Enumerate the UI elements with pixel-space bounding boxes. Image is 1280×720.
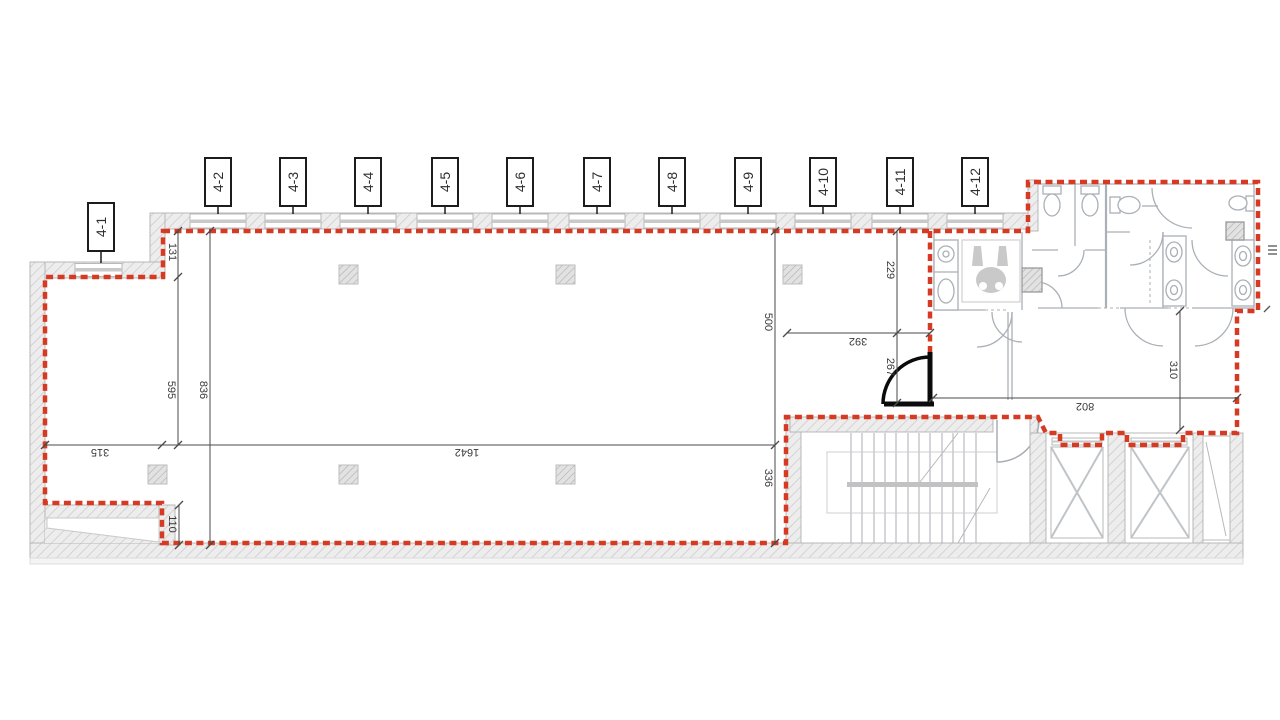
axis-label-4-7: 4-7 [584, 158, 610, 214]
door-arc [1058, 250, 1084, 276]
dimension-836: 836 [197, 381, 209, 399]
door-arc [1195, 308, 1233, 346]
urinal-fixture [1043, 186, 1061, 216]
stair-break-line [958, 488, 990, 543]
axis-label-4-9: 4-9 [735, 158, 761, 214]
svg-text:4-7: 4-7 [589, 172, 605, 192]
elevator-shaft-2 [1125, 433, 1193, 543]
door-arc [992, 312, 1022, 342]
svg-text:4-4: 4-4 [360, 172, 376, 192]
cleaning-trolley-icon [972, 246, 1008, 293]
bottom-wall-outer-band [30, 558, 1243, 564]
column [339, 265, 358, 284]
dimension-229: 229 [884, 261, 896, 279]
axis-labels: 4-1 4-2 4-3 4-4 4-5 4-6 [88, 158, 988, 263]
dimension-315: 315 [91, 446, 109, 458]
dimension-1642: 1642 [455, 446, 479, 458]
axis-label-4-3: 4-3 [280, 158, 306, 214]
svg-text:4-12: 4-12 [967, 168, 983, 196]
sink-counter [1232, 240, 1254, 306]
floor-plan-page: 131 595 836 315 1642 500 336 229 267 392… [0, 0, 1280, 720]
dimension-500: 500 [762, 313, 774, 331]
dimension-texts: 131 595 836 315 1642 500 336 229 267 392… [91, 243, 1179, 533]
svg-text:4-2: 4-2 [210, 172, 226, 192]
svg-text:4-1: 4-1 [93, 217, 109, 237]
stair-treads [851, 433, 976, 543]
axis-label-4-4: 4-4 [355, 158, 381, 214]
dimension-336: 336 [762, 469, 774, 487]
column [339, 465, 358, 484]
duct-block [1022, 268, 1042, 292]
wedge-top-wall [45, 505, 175, 518]
window-4-1 [75, 264, 122, 277]
dimension-802: 802 [1076, 400, 1094, 412]
cleaning-sink-strip [934, 240, 958, 310]
duct-block [1226, 222, 1244, 240]
axis-label-4-12: 4-12 [962, 158, 988, 214]
edge-tick-marks [1264, 246, 1277, 312]
svg-text:4-6: 4-6 [512, 172, 528, 192]
axis-label-4-8: 4-8 [659, 158, 685, 214]
floor-plan-canvas: 131 595 836 315 1642 500 336 229 267 392… [0, 0, 1280, 720]
dimension-595: 595 [165, 381, 177, 399]
axis-label-4-10: 4-10 [810, 158, 836, 214]
svg-text:4-11: 4-11 [892, 168, 908, 195]
service-shaft [1203, 436, 1230, 540]
dimension-267: 267 [884, 358, 896, 376]
window-strip [190, 214, 1003, 228]
axis-label-4-2: 4-2 [205, 158, 231, 214]
axis-label-4-11: 4-11 [887, 158, 913, 214]
svg-text:4-5: 4-5 [437, 172, 453, 192]
stair-break-line [920, 433, 958, 482]
door-arc [1130, 232, 1163, 265]
sink-counter [1163, 236, 1186, 306]
svg-text:4-9: 4-9 [740, 172, 756, 192]
axis-label-4-1: 4-1 [88, 203, 114, 263]
stair-handrail [847, 482, 978, 487]
column [783, 265, 802, 284]
door-arc [977, 312, 1012, 347]
urinal-fixture [1081, 186, 1099, 216]
stair-block [786, 417, 1039, 543]
door-arc [1125, 308, 1163, 346]
svg-text:4-8: 4-8 [664, 172, 680, 192]
toilet-fixture [1110, 197, 1140, 214]
dimension-131: 131 [166, 243, 178, 261]
elevator-shaft-1 [1046, 433, 1108, 543]
dimension-310: 310 [1167, 361, 1179, 379]
cleaning-room [934, 232, 1042, 310]
toilet-fixture [1229, 196, 1254, 211]
door-arc [1152, 188, 1192, 228]
svg-text:4-3: 4-3 [285, 172, 301, 192]
elevator-block [1030, 433, 1243, 543]
svg-text:4-10: 4-10 [815, 168, 831, 196]
axis-label-4-5: 4-5 [432, 158, 458, 214]
dimension-392: 392 [849, 335, 867, 347]
column [556, 465, 575, 484]
column [148, 465, 167, 484]
door-arc [1192, 240, 1228, 276]
column [556, 265, 575, 284]
dimension-110: 110 [166, 515, 178, 533]
axis-label-4-6: 4-6 [507, 158, 533, 214]
